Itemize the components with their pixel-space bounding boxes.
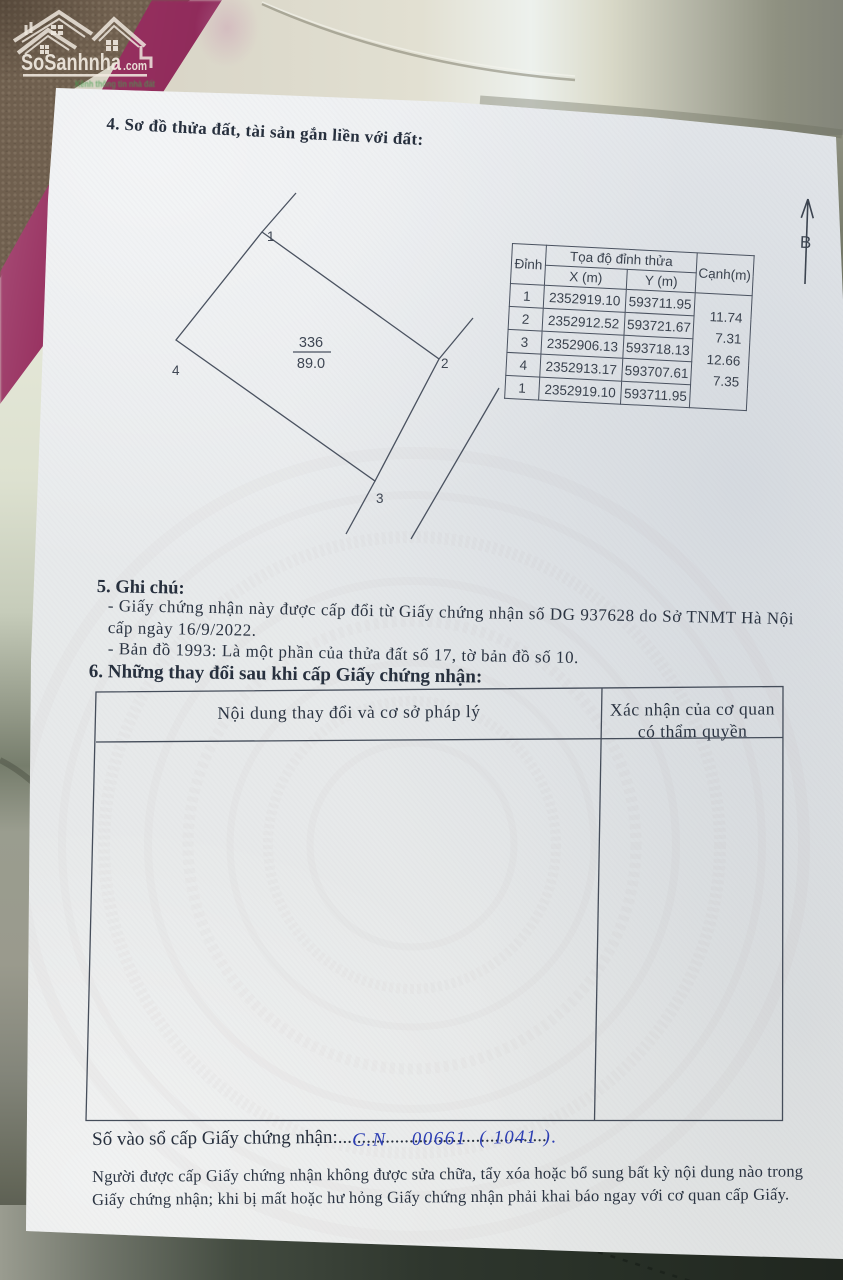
svg-text:Kênh thông tin nhà đất: Kênh thông tin nhà đất	[75, 79, 156, 90]
svg-text:.com: .com	[123, 58, 147, 73]
svg-text:SoSanhnha: SoSanhnha	[21, 49, 121, 75]
